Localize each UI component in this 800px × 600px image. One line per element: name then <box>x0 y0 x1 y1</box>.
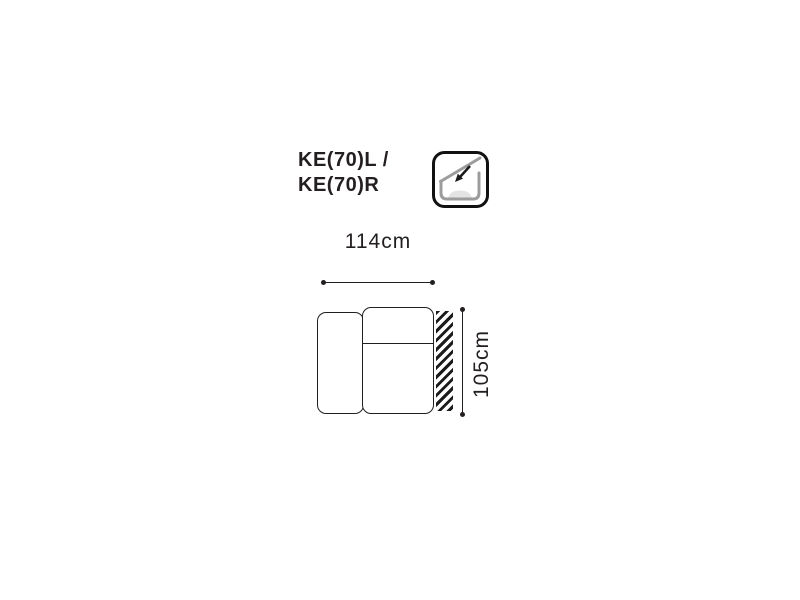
width-dimension-endpoint-left <box>321 280 326 285</box>
product-title-line1: KE(70)L / <box>298 148 389 173</box>
product-title-line2: KE(70)R <box>298 173 389 198</box>
module-dimension-diagram: KE(70)L / KE(70)R 114cm 105cm <box>0 0 800 600</box>
reclining-backrest-icon <box>432 151 489 208</box>
backrest-divider-line <box>363 343 433 344</box>
height-dimension-label: 105cm <box>470 309 496 419</box>
sofa-seat-outline <box>362 307 434 414</box>
width-dimension-endpoint-right <box>430 280 435 285</box>
height-dimension-endpoint-top <box>460 307 465 312</box>
height-dimension-line <box>462 309 463 414</box>
width-dimension-line <box>324 282 432 283</box>
connection-side-hatching <box>436 311 453 411</box>
width-dimension-label: 114cm <box>323 230 433 254</box>
height-dimension-endpoint-bottom <box>460 412 465 417</box>
product-title: KE(70)L / KE(70)R <box>298 148 389 198</box>
reclining-backrest-icon-svg <box>432 151 489 208</box>
sofa-armrest-outline <box>317 312 364 414</box>
